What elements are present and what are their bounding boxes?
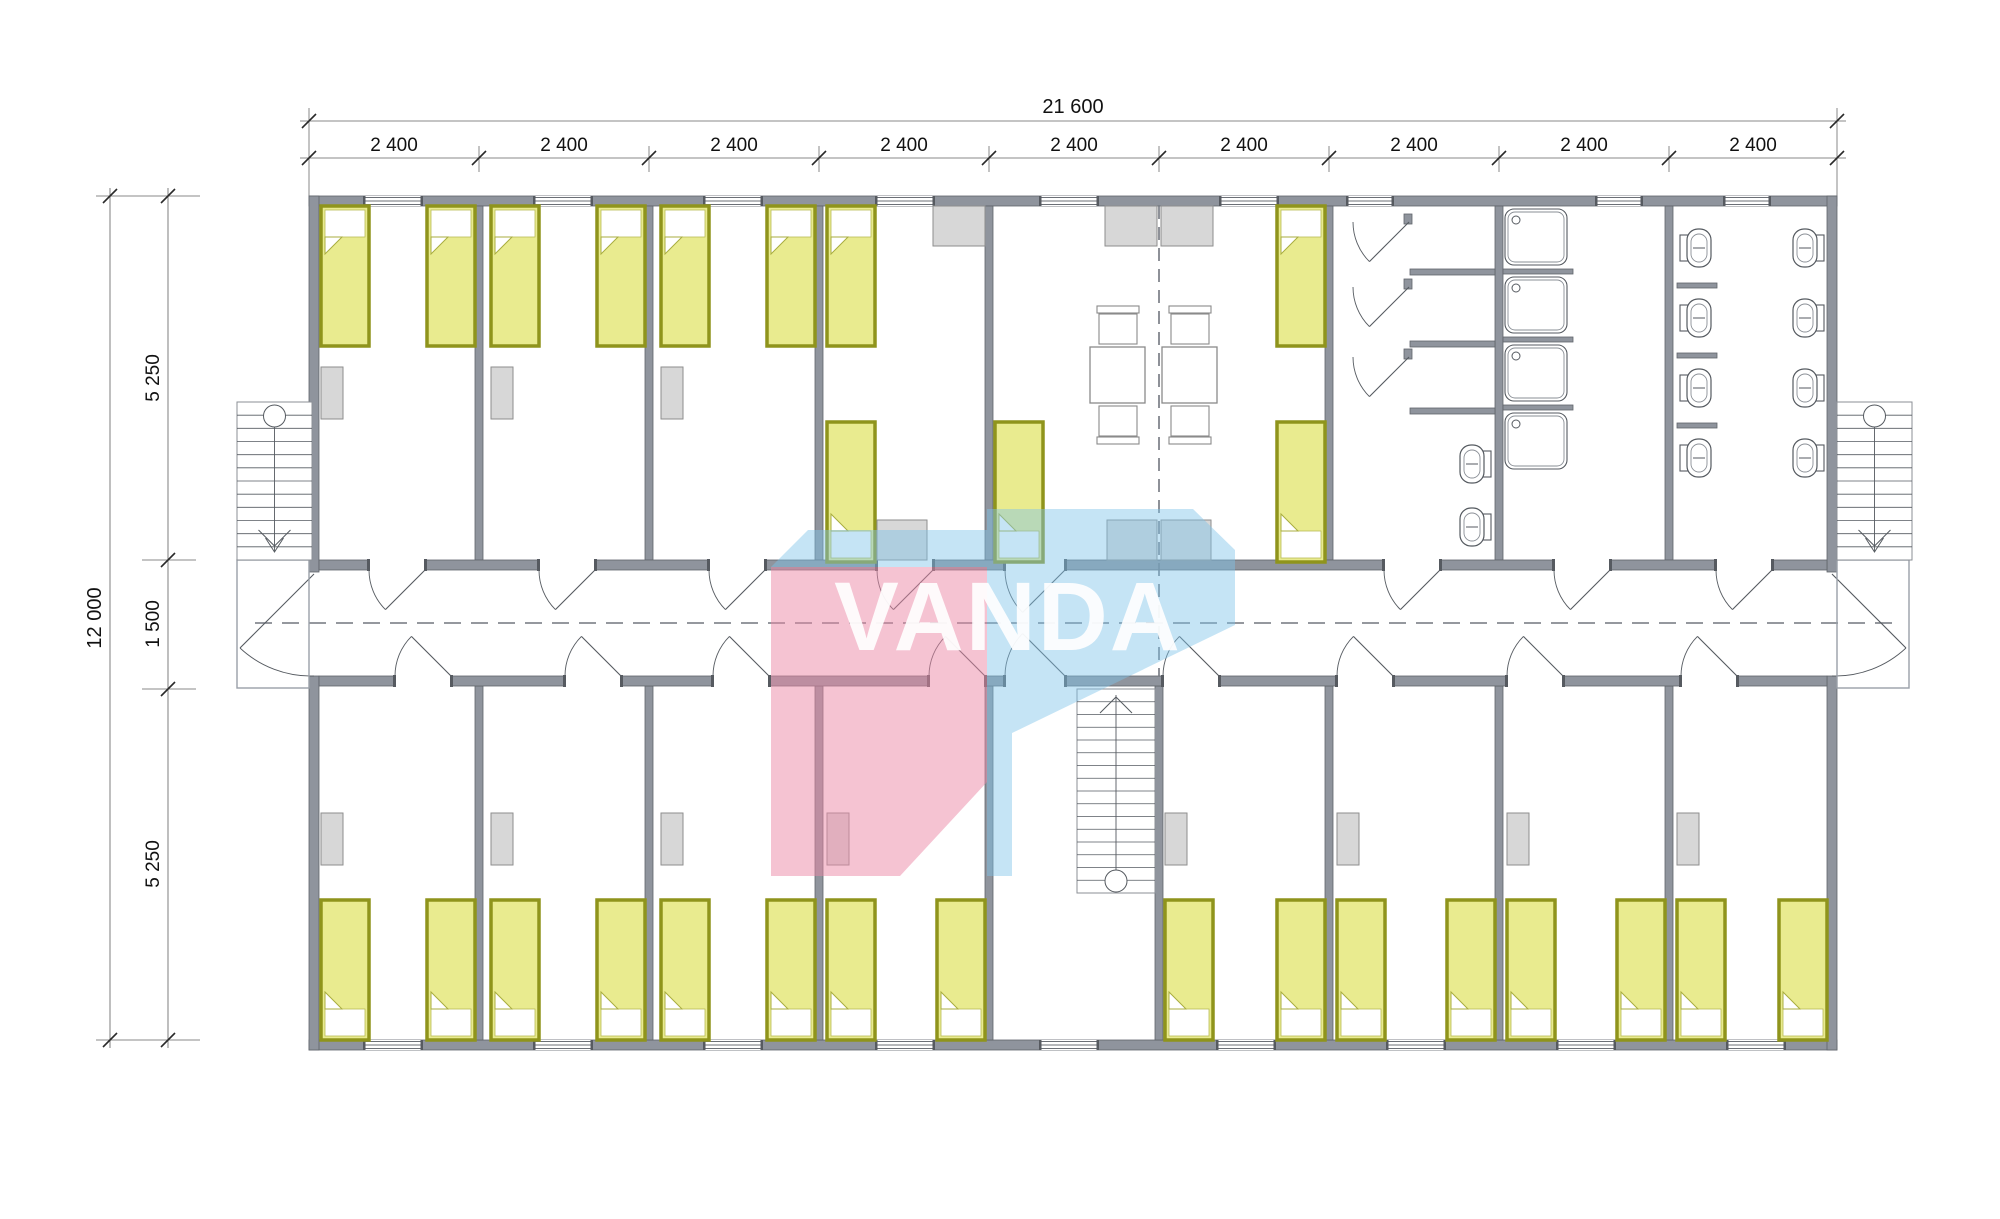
corridor-wall-north	[1610, 560, 1716, 570]
door-arc	[1832, 648, 1906, 676]
window-jamb	[421, 196, 424, 206]
interior-wall	[1155, 686, 1163, 1040]
wc-partition	[1677, 423, 1717, 428]
bed	[767, 900, 815, 1040]
chair-seat	[1171, 406, 1209, 436]
wardrobe	[661, 367, 683, 419]
floorplan-canvas: 21 6002 4002 4002 4002 4002 4002 4002 40…	[0, 0, 2000, 1219]
door-jamb	[1439, 559, 1442, 571]
door-arc	[709, 570, 725, 610]
door-jamb	[707, 559, 710, 571]
exterior-wall-right	[1827, 196, 1837, 572]
door-jamb	[537, 559, 540, 571]
door-leaf	[581, 636, 621, 676]
staircase-exterior-left	[237, 402, 312, 560]
door-jamb	[1562, 675, 1565, 687]
chair-back	[1169, 437, 1211, 444]
toilet	[1460, 445, 1491, 483]
toilet	[1680, 229, 1711, 267]
bed	[321, 900, 369, 1040]
bed	[661, 206, 709, 346]
shower-partition	[1503, 405, 1573, 410]
dim-label-left-seg: 5 250	[143, 354, 164, 402]
bed	[1507, 900, 1555, 1040]
window-jamb	[933, 196, 936, 206]
dining	[1090, 306, 1217, 444]
shower-door-leaf	[1369, 222, 1409, 262]
door-jamb	[450, 675, 453, 687]
dim-label-left-seg: 5 250	[143, 840, 164, 888]
corridor-wall-south	[451, 676, 565, 686]
bed	[827, 206, 875, 346]
wardrobe	[1677, 813, 1699, 865]
toilet	[1793, 439, 1824, 477]
bed-pillow	[325, 1009, 365, 1036]
window-jamb	[761, 1040, 764, 1050]
bed	[321, 206, 369, 346]
exterior-wall-left	[309, 676, 319, 1050]
toilet	[1460, 508, 1491, 546]
wardrobe	[491, 367, 513, 419]
dim-label-bay: 2 400	[1729, 135, 1777, 156]
vanda-logo-text: VANDA	[834, 562, 1182, 671]
door-arc	[565, 636, 581, 676]
door-arc	[1554, 570, 1570, 610]
dining-table	[1162, 347, 1217, 403]
wardrobe	[661, 813, 683, 865]
chair-back	[1097, 437, 1139, 444]
chair-seat	[1099, 406, 1137, 436]
bed-pillow	[771, 210, 811, 237]
door-leaf	[411, 636, 451, 676]
washrooms	[1353, 209, 1824, 546]
wardrobe	[1165, 813, 1187, 865]
bed-pillow	[431, 210, 471, 237]
bed-pillow	[601, 1009, 641, 1036]
window-jamb	[1097, 1040, 1100, 1050]
door-leaf	[1732, 570, 1772, 610]
wardrobe	[321, 367, 343, 419]
door-leaf	[240, 574, 314, 648]
door-arc	[1507, 636, 1523, 676]
bed	[1277, 900, 1325, 1040]
stair-start-circle	[1105, 870, 1127, 892]
corridor-wall-north	[1440, 560, 1554, 570]
dim-label-top-total: 21 600	[1042, 96, 1103, 118]
bed	[1677, 900, 1725, 1040]
staircase-internal	[1077, 689, 1155, 893]
bed-pillow	[495, 1009, 535, 1036]
bed-pillow	[1281, 531, 1321, 558]
door-leaf	[1570, 570, 1610, 610]
bed	[661, 900, 709, 1040]
chair-seat	[1171, 314, 1209, 344]
window-jamb	[421, 1040, 424, 1050]
bed	[1165, 900, 1213, 1040]
corridor-wall-south	[621, 676, 713, 686]
door-jamb	[1335, 675, 1338, 687]
door-arc	[1384, 570, 1400, 610]
dim-label-bay: 2 400	[1560, 135, 1608, 156]
bed-pillow	[665, 210, 705, 237]
door-jamb	[1609, 559, 1612, 571]
bed-pillow	[941, 1009, 981, 1036]
shower-door-arc	[1353, 222, 1369, 262]
shower-door-leaf	[1369, 287, 1409, 327]
door-jamb	[563, 675, 566, 687]
door-leaf	[1523, 636, 1563, 676]
stair-start-circle	[264, 405, 286, 427]
window-jamb	[1097, 196, 1100, 206]
shower-partition	[1503, 269, 1573, 274]
window-jamb	[1039, 196, 1042, 206]
chair-back	[1097, 306, 1139, 313]
door-leaf	[1353, 636, 1393, 676]
window-jamb	[1392, 196, 1395, 206]
corridor-wall-north	[1772, 560, 1827, 570]
stair-start-circle	[1864, 405, 1886, 427]
door-arc	[1337, 636, 1353, 676]
window-jamb	[1769, 196, 1772, 206]
door-leaf	[725, 570, 765, 610]
bed	[767, 206, 815, 346]
bed-pillow	[665, 1009, 705, 1036]
chair-seat	[1099, 314, 1137, 344]
window-jamb	[1723, 196, 1726, 206]
dim-label-left-seg: 1 500	[143, 600, 164, 648]
corridor-wall-north	[319, 560, 369, 570]
bed-pillow	[1281, 210, 1321, 237]
door-jamb	[1218, 675, 1221, 687]
dim-label-left-total: 12 000	[84, 587, 106, 648]
bed-pillow	[431, 1009, 471, 1036]
toilet	[1680, 369, 1711, 407]
window-jamb	[761, 196, 764, 206]
door-jamb	[1736, 675, 1739, 687]
bed	[827, 900, 875, 1040]
corridor-wall-south	[1563, 676, 1681, 686]
interior-wall	[1495, 206, 1503, 560]
window-jamb	[1219, 196, 1222, 206]
door-jamb	[393, 675, 396, 687]
bed-pillow	[495, 210, 535, 237]
door-jamb	[1382, 559, 1385, 571]
dim-label-bay: 2 400	[370, 135, 418, 156]
window-jamb	[1346, 196, 1349, 206]
window-jamb	[933, 1040, 936, 1050]
wc-partition	[1677, 353, 1717, 358]
bed	[427, 206, 475, 346]
shower-tray	[1505, 209, 1567, 265]
door-jamb	[711, 675, 714, 687]
bed-pillow	[1169, 1009, 1209, 1036]
wardrobe	[321, 813, 343, 865]
interior-wall	[1665, 206, 1673, 560]
shower-door-leaf	[1369, 357, 1409, 397]
toilet	[1793, 369, 1824, 407]
wardrobe	[491, 813, 513, 865]
bed-pillow	[1621, 1009, 1661, 1036]
door-jamb	[1505, 675, 1508, 687]
wc-partition	[1677, 283, 1717, 288]
window-jamb	[591, 1040, 594, 1050]
dim-label-bay: 2 400	[710, 135, 758, 156]
kitchen-counter	[933, 206, 985, 246]
bed-pillow	[1341, 1009, 1381, 1036]
door-arc	[713, 636, 729, 676]
door-jamb	[1679, 675, 1682, 687]
door-leaf	[1697, 636, 1737, 676]
window-jamb	[591, 196, 594, 206]
wardrobe	[1507, 813, 1529, 865]
toilet	[1680, 299, 1711, 337]
door-arc	[395, 636, 411, 676]
corridor-wall-north	[595, 560, 709, 570]
shower-partition	[1410, 408, 1495, 414]
shower-door-arc	[1353, 287, 1369, 327]
bed	[1277, 422, 1325, 562]
bed-pillow	[1451, 1009, 1491, 1036]
bed-pillow	[601, 210, 641, 237]
bed-pillow	[831, 210, 871, 237]
door-jamb	[1714, 559, 1717, 571]
dim-label-bay: 2 400	[1390, 135, 1438, 156]
window-jamb	[1641, 196, 1644, 206]
bed	[491, 206, 539, 346]
dim-label-bay: 2 400	[880, 135, 928, 156]
door-jamb	[1552, 559, 1555, 571]
chair-back	[1169, 306, 1211, 313]
bed-pillow	[325, 210, 365, 237]
door-leaf	[1400, 570, 1440, 610]
shower-tray	[1505, 345, 1567, 401]
door-jamb	[768, 675, 771, 687]
dining-table	[1090, 347, 1145, 403]
door-jamb	[594, 559, 597, 571]
wardrobe	[1337, 813, 1359, 865]
door-arc	[369, 570, 385, 610]
door-arc	[1716, 570, 1732, 610]
bed	[1277, 206, 1325, 346]
window-jamb	[1039, 1040, 1042, 1050]
bed-pillow	[831, 1009, 871, 1036]
corridor-wall-south	[319, 676, 395, 686]
bed-pillow	[1511, 1009, 1551, 1036]
bed-pillow	[1681, 1009, 1721, 1036]
dim-label-bay: 2 400	[1220, 135, 1268, 156]
shower-partition	[1410, 269, 1495, 275]
interior-wall	[985, 206, 993, 560]
bed	[1617, 900, 1665, 1040]
bed	[597, 206, 645, 346]
door-arc	[1681, 636, 1697, 676]
door-jamb	[764, 559, 767, 571]
toilet	[1793, 229, 1824, 267]
door-jamb	[424, 559, 427, 571]
corridor-wall-north	[425, 560, 539, 570]
bed	[427, 900, 475, 1040]
kitchen-counter	[1161, 206, 1213, 246]
door-leaf	[385, 570, 425, 610]
toilet	[1793, 299, 1824, 337]
shower-partition	[1503, 337, 1573, 342]
door-jamb	[1161, 675, 1164, 687]
shower-partition	[1410, 341, 1495, 347]
bed	[1337, 900, 1385, 1040]
bed	[1447, 900, 1495, 1040]
door-jamb	[1771, 559, 1774, 571]
bed-pillow	[1783, 1009, 1823, 1036]
window-jamb	[1216, 1040, 1219, 1050]
door-jamb	[367, 559, 370, 571]
door-leaf	[555, 570, 595, 610]
door-jamb	[1392, 675, 1395, 687]
bed	[491, 900, 539, 1040]
corridor-wall-south	[1393, 676, 1507, 686]
door-arc	[240, 648, 314, 676]
door-arc	[539, 570, 555, 610]
floor-plan: 21 6002 4002 4002 4002 4002 4002 4002 40…	[0, 0, 2000, 1219]
kitchen-counter	[1105, 206, 1157, 246]
door-leaf	[729, 636, 769, 676]
corridor-wall-south	[1737, 676, 1827, 686]
shower-door-arc	[1353, 357, 1369, 397]
bed	[1779, 900, 1827, 1040]
shower-tray	[1505, 277, 1567, 333]
bed	[937, 900, 985, 1040]
toilet	[1680, 439, 1711, 477]
dim-label-bay: 2 400	[540, 135, 588, 156]
dim-label-bay: 2 400	[1050, 135, 1098, 156]
shower-tray	[1505, 413, 1567, 469]
corridor-wall-south	[1219, 676, 1337, 686]
door-jamb	[620, 675, 623, 687]
bed	[597, 900, 645, 1040]
bed-pillow	[1281, 1009, 1321, 1036]
window-jamb	[1595, 196, 1598, 206]
bed-pillow	[771, 1009, 811, 1036]
staircase-exterior-right	[1837, 402, 1912, 560]
door-leaf	[1832, 574, 1906, 648]
